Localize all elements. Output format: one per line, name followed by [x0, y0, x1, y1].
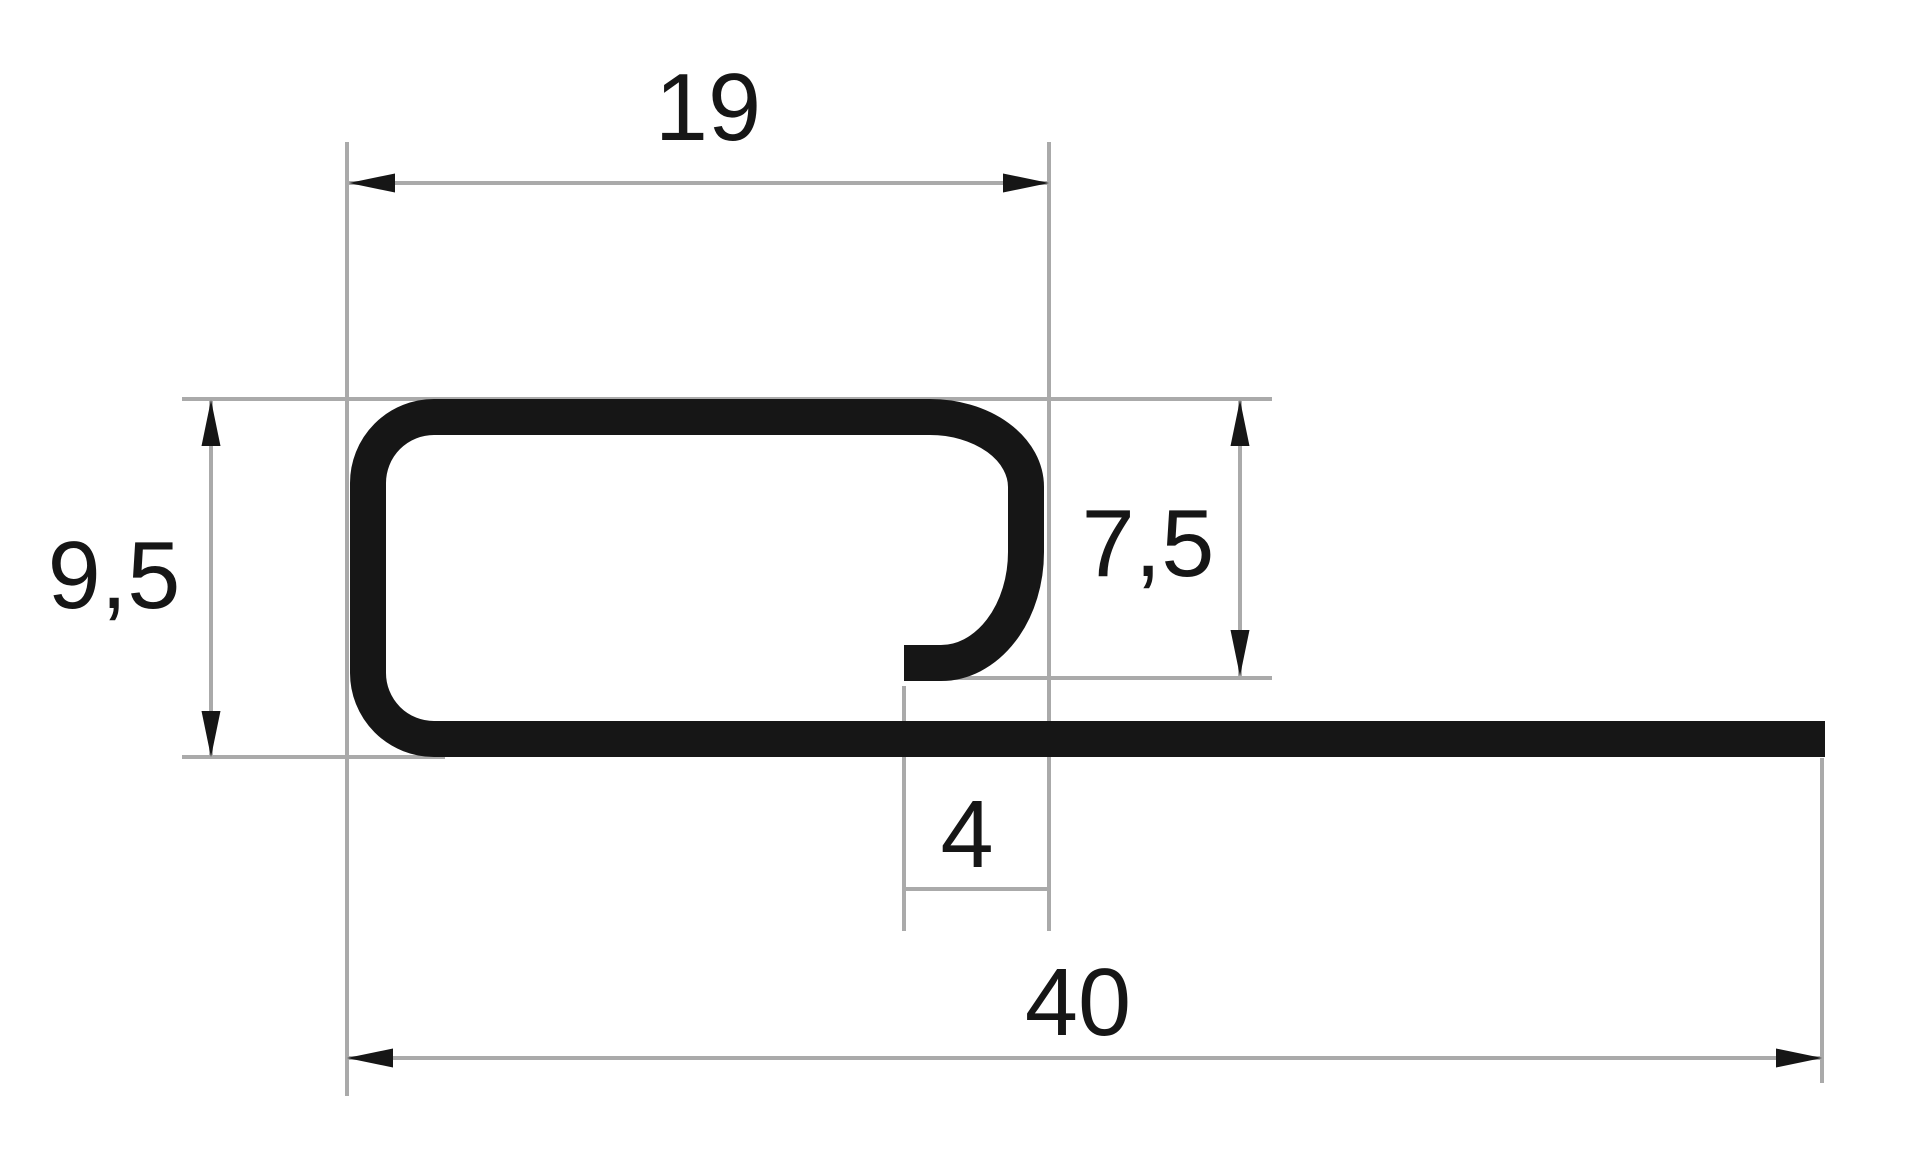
svg-text:40: 40 — [1025, 950, 1131, 1056]
svg-text:19: 19 — [655, 55, 761, 161]
svg-text:7,5: 7,5 — [1082, 491, 1215, 597]
svg-text:4: 4 — [940, 782, 993, 888]
svg-text:9,5: 9,5 — [48, 523, 181, 629]
